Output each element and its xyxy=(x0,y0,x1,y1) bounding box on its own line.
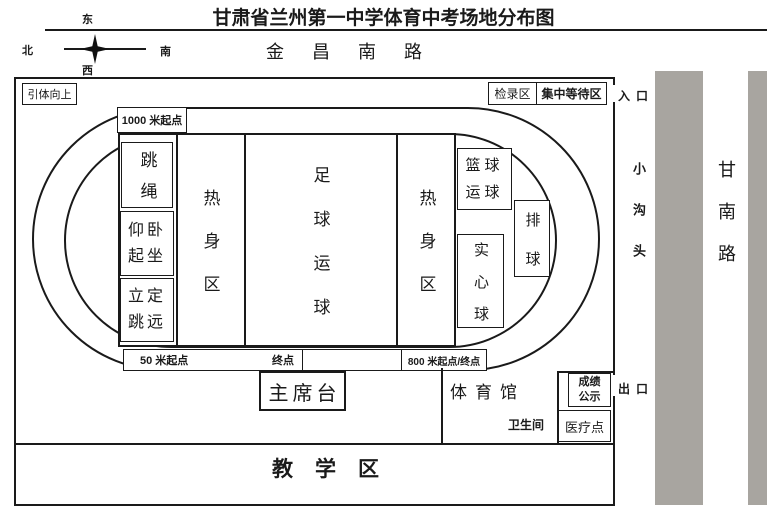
sit-ups-line2: 起坐 xyxy=(128,244,166,270)
page-title: 甘肃省兰州第一中学体育中考场地分布图 xyxy=(0,3,767,30)
start-50m-label: 50 米起点 xyxy=(140,352,188,368)
score-notice-line1: 成绩 xyxy=(579,375,601,390)
rostrum-box: 主席台 xyxy=(259,371,346,411)
site-map: 甘肃省兰州第一中学体育中考场地分布图 金昌南路 东 北 南 西 入口 出口 引体… xyxy=(0,0,767,516)
gymnasium-label: 体育馆 xyxy=(450,378,525,403)
start-50m-finish-box: 50 米起点 终点 xyxy=(123,349,303,371)
pull-up-area-box: 引体向上 xyxy=(22,83,77,105)
volleyball-label: 排球 xyxy=(522,212,543,290)
check-in-area-box: 检录区 xyxy=(488,82,537,105)
warm-up-left-zone: 热身区 xyxy=(177,135,243,345)
finish-label: 终点 xyxy=(272,352,294,368)
basketball-line1: 篮球 xyxy=(465,152,503,179)
football-dribble-label: 足球运球 xyxy=(308,166,333,342)
score-notice-line2: 公示 xyxy=(579,390,601,405)
sit-ups-line1: 仰卧 xyxy=(128,218,166,244)
volleyball-box: 排球 xyxy=(514,200,550,277)
sit-ups-box: 仰卧 起坐 xyxy=(120,211,174,276)
basketball-line2: 运球 xyxy=(465,179,503,206)
standing-jump-line1: 立定 xyxy=(128,284,166,310)
warm-up-right-zone: 热身区 xyxy=(397,135,455,345)
teaching-area-label: 教学区 xyxy=(14,453,637,483)
side-lane-name: 小沟头 xyxy=(629,162,648,285)
restroom-label: 卫生间 xyxy=(508,416,544,433)
standing-jump-box: 立定 跳远 xyxy=(120,278,174,342)
side-lane-road-bar xyxy=(655,71,703,505)
side-road-name: 甘南路 xyxy=(713,160,739,286)
medicine-ball-box: 实心球 xyxy=(457,234,504,328)
waiting-area-box: 集中等待区 xyxy=(536,82,607,105)
score-notice-box: 成绩 公示 xyxy=(568,373,611,407)
top-road-line xyxy=(45,29,767,31)
exit-label: 出口 xyxy=(618,380,654,397)
gym-left-line xyxy=(441,368,443,445)
basketball-dribble-box: 篮球 运球 xyxy=(457,148,512,210)
warm-up-left-label: 热身区 xyxy=(198,189,223,318)
compass-south-label: 南 xyxy=(160,43,171,59)
start-800m-box: 800 米起点/终点 xyxy=(401,349,487,371)
top-road-name: 金昌南路 xyxy=(60,38,628,64)
standing-jump-line2: 跳远 xyxy=(128,310,166,336)
compass-east-label: 东 xyxy=(82,11,93,27)
football-dribble-zone: 足球运球 xyxy=(245,135,395,345)
compass-west-label: 西 xyxy=(82,62,93,78)
teaching-area-top-line xyxy=(15,443,614,445)
medical-point-box: 医疗点 xyxy=(558,410,611,442)
strip-empty-box xyxy=(302,349,402,371)
side-road-bar-2 xyxy=(748,71,767,505)
medicine-ball-label: 实心球 xyxy=(470,242,491,338)
entrance-label: 入口 xyxy=(618,87,654,104)
rope-skipping-label: 跳绳 xyxy=(135,151,160,213)
warm-up-right-label: 热身区 xyxy=(414,189,439,318)
compass-north-label: 北 xyxy=(22,42,33,58)
start-1000m-box: 1000 米起点 xyxy=(117,107,187,133)
rope-skipping-box: 跳绳 xyxy=(121,142,173,208)
